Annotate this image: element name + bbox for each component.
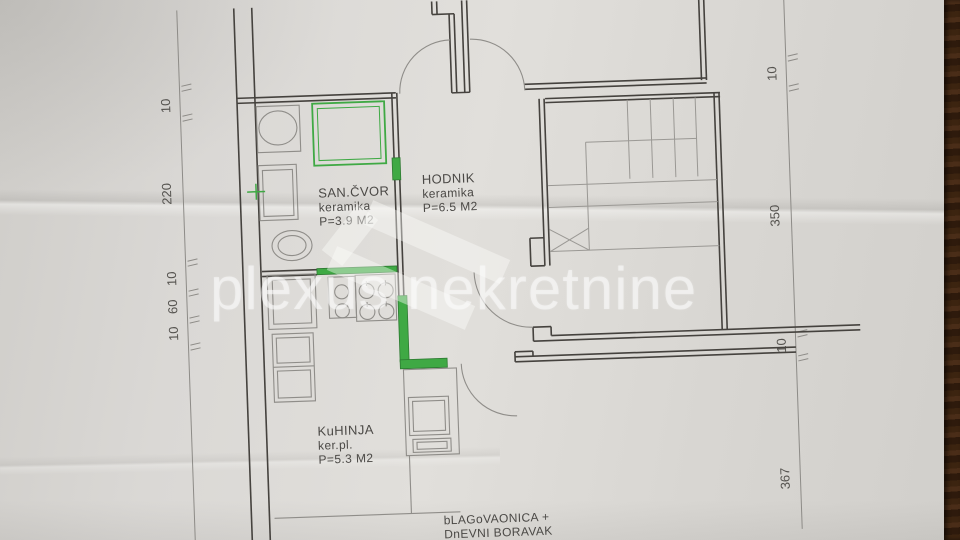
floor-plan-photo: 10 220 10 60 10 10 350 10 367 — [0, 0, 960, 540]
room-name: SAN.ČVOR — [318, 184, 390, 200]
room-labels: SAN.ČVOR keramika P=3.9 M2 HODNIK kerami… — [0, 0, 960, 540]
room-label-blagovaonica: bLAGoVAONICA + DnEVNI BORAVAK — [443, 510, 552, 540]
room-area: P=5.3 M2 — [318, 451, 375, 467]
room-label-hodnik: HODNIK keramika P=6.5 M2 — [422, 171, 478, 215]
room-area: P=3.9 M2 — [319, 212, 391, 228]
room-label-san-cvor: SAN.ČVOR keramika P=3.9 M2 — [318, 184, 391, 228]
table-edge — [944, 0, 960, 540]
room-name: DnEVNI BORAVAK — [444, 524, 553, 540]
room-name: KuHINJA — [317, 423, 374, 439]
room-label-kuhinja: KuHINJA ker.pl. P=5.3 M2 — [317, 423, 375, 467]
room-area: P=6.5 M2 — [423, 199, 478, 215]
